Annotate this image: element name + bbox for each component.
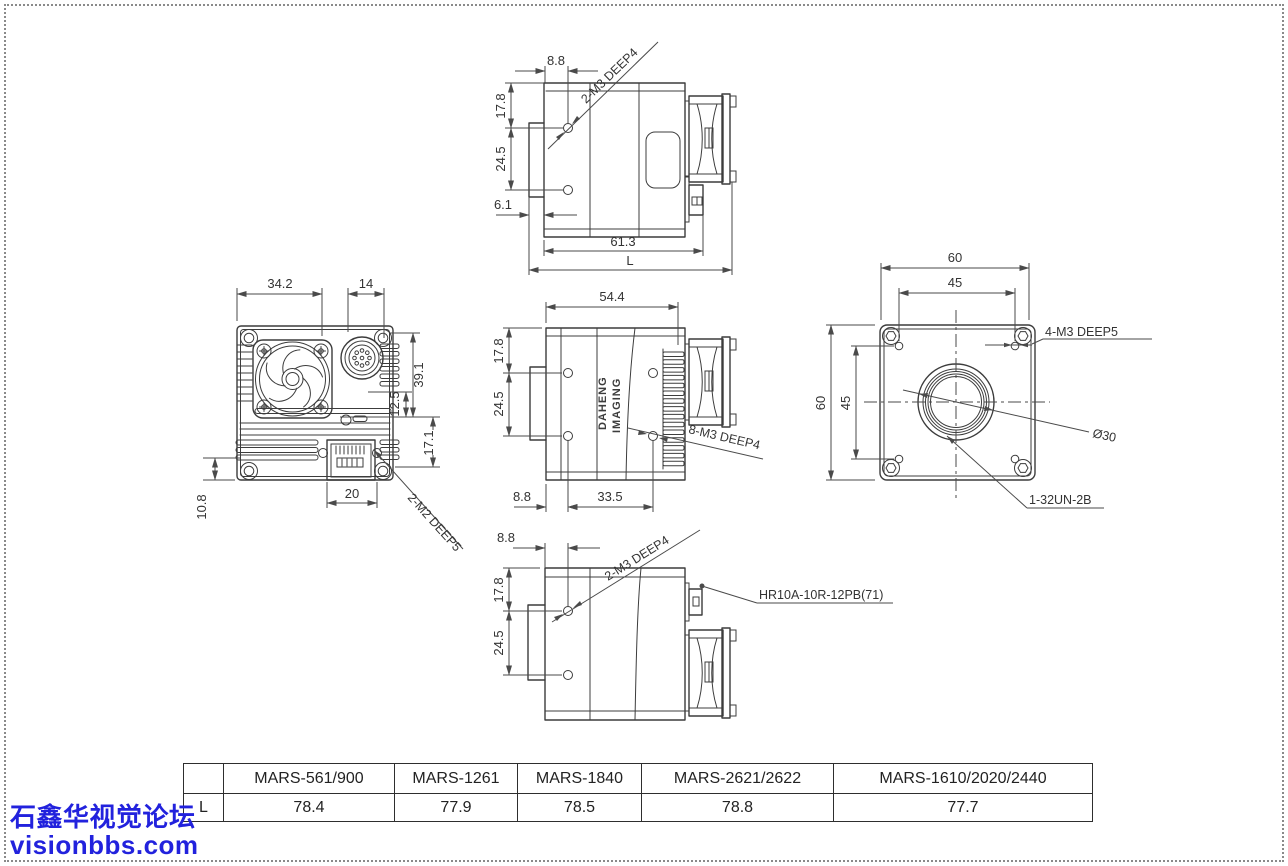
model-length-table: MARS-561/900 MARS-1261 MARS-1840 MARS-26… <box>183 763 1093 822</box>
dim-bottom-8-8: 8.8 <box>497 530 515 545</box>
table-value-row: L 78.4 77.9 78.5 78.8 77.7 <box>184 794 1093 822</box>
table-value: 78.4 <box>224 794 395 822</box>
side-callout-holes: 8-M3 DEEP4 <box>628 422 763 459</box>
dim-bottom-17-8: 17.8 <box>491 577 506 602</box>
view-top-side: 8.8 17.8 24.5 6.1 61.3 L <box>493 42 736 275</box>
dim-front-pattern-45-v: 45 <box>838 396 853 410</box>
dim-side-33-5: 33.5 <box>597 489 622 504</box>
dim-side-54-4: 54.4 <box>599 289 624 304</box>
front-lens-mount <box>864 310 1050 502</box>
back-power-connector <box>341 337 383 379</box>
callout-back-holes: 2-M2 DEEP5 <box>405 491 464 555</box>
table-corner-cell <box>184 764 224 794</box>
watermark-site-url: visionbbs.com <box>10 831 199 859</box>
side-logo-text: DAHENG IMAGING <box>597 376 623 433</box>
watermark-forum-name: 石鑫华视觉论坛 <box>10 803 199 831</box>
logo-imaging: IMAGING <box>611 378 623 433</box>
back-fan <box>253 340 332 418</box>
dim-top-17-8: 17.8 <box>493 93 508 118</box>
technical-drawing-canvas: 8.8 17.8 24.5 6.1 61.3 L <box>0 0 1288 866</box>
view-back: 34.2 14 39.1 12.5 17.1 10.8 <box>194 276 464 554</box>
view-side-logo: DAHENG IMAGING 54.4 <box>491 289 763 512</box>
front-callout-corner-holes: 4-M3 DEEP5 <box>985 325 1152 347</box>
callout-bottom-connector: HR10A-10R-12PB(71) <box>759 588 883 602</box>
table-value: 77.7 <box>834 794 1093 822</box>
table-header-model: MARS-1610/2020/2440 <box>834 764 1093 794</box>
dim-top-hole-offset: 8.8 <box>547 53 565 68</box>
view-bottom-side: 8.8 17.8 24.5 2-M3 DEEP4 HR10A-10R-12PB( <box>491 530 893 720</box>
dim-back-20: 20 <box>345 486 359 501</box>
bottom-hirose-connector <box>685 583 702 621</box>
side-fan-profile <box>685 337 736 427</box>
dim-top-24-5: 24.5 <box>493 146 508 171</box>
back-callout-holes: 2-M2 DEEP5 <box>374 450 464 554</box>
bottom-body-outline <box>528 568 685 720</box>
dim-back-14: 14 <box>359 276 373 291</box>
logo-daheng: DAHENG <box>597 376 609 430</box>
drawing-page: 8.8 17.8 24.5 6.1 61.3 L <box>0 0 1288 866</box>
dim-front-height-60: 60 <box>813 396 828 410</box>
dim-top-total-length: L <box>626 253 633 268</box>
dim-bottom-24-5: 24.5 <box>491 630 506 655</box>
side-dimensions: 54.4 17.8 24.5 8.8 33.5 <box>491 289 678 512</box>
table-header-model: MARS-1840 <box>518 764 642 794</box>
dim-back-17-1: 17.1 <box>421 430 436 455</box>
dim-side-8-8: 8.8 <box>513 489 531 504</box>
view-front: 60 45 60 45 4-M3 DEEP5 <box>813 250 1152 508</box>
top-fan-profile <box>685 94 736 184</box>
table-value: 77.9 <box>395 794 518 822</box>
dim-front-width-60: 60 <box>948 250 962 265</box>
table-header-model: MARS-1261 <box>395 764 518 794</box>
table-header-row: MARS-561/900 MARS-1261 MARS-1840 MARS-26… <box>184 764 1093 794</box>
bottom-callout-connector: HR10A-10R-12PB(71) <box>700 584 894 604</box>
table-value: 78.5 <box>518 794 642 822</box>
top-connector-profile <box>685 176 703 222</box>
side-heatsink-fins <box>663 349 684 469</box>
dim-back-39-1: 39.1 <box>411 362 426 387</box>
bottom-callout-holes: 2-M3 DEEP4 <box>552 530 700 622</box>
callout-front-thread: 1-32UN-2B <box>1029 493 1092 507</box>
callout-top-holes: 2-M3 DEEP4 <box>578 45 640 106</box>
dim-back-34-2: 34.2 <box>267 276 292 291</box>
table-header-model: MARS-561/900 <box>224 764 395 794</box>
dim-back-10-8: 10.8 <box>194 494 209 519</box>
table-value: 78.8 <box>642 794 834 822</box>
dim-side-24-5: 24.5 <box>491 391 506 416</box>
dim-back-12-5: 12.5 <box>387 391 402 416</box>
dim-side-17-8: 17.8 <box>491 338 506 363</box>
dim-top-flange: 6.1 <box>494 197 512 212</box>
callout-front-diameter: Ø30 <box>1091 426 1117 445</box>
top-body-outline <box>529 83 685 237</box>
watermark: 石鑫华视觉论坛 visionbbs.com <box>10 803 199 859</box>
table-header-model: MARS-2621/2622 <box>642 764 834 794</box>
back-rj45-port <box>319 440 382 480</box>
callout-front-corner-holes: 4-M3 DEEP5 <box>1045 325 1118 339</box>
front-dimensions: 60 45 60 45 <box>813 250 1029 480</box>
dim-top-body-length: 61.3 <box>610 234 635 249</box>
bottom-fan-profile <box>685 628 736 718</box>
dim-front-pattern-45: 45 <box>948 275 962 290</box>
callout-bottom-holes: 2-M3 DEEP4 <box>602 533 671 584</box>
